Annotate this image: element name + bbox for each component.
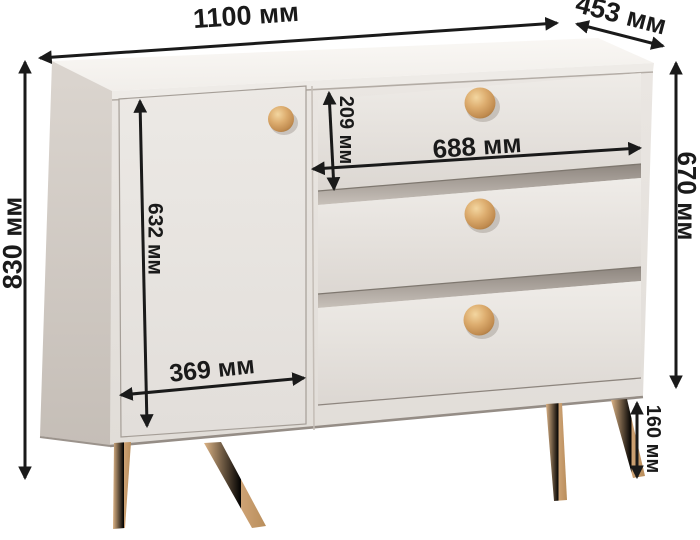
drawer-1-knob xyxy=(465,88,496,119)
back-left-leg xyxy=(204,442,266,528)
dim-label-door-height: 632 мм xyxy=(145,203,166,275)
dim-label-overall-height: 830 мм xyxy=(0,197,27,290)
dresser-illustration xyxy=(0,0,700,540)
drawer-3-knob xyxy=(464,305,495,336)
dim-label-leg-height: 160 мм xyxy=(643,405,663,474)
dim-label-body-height: 670 мм xyxy=(674,151,700,240)
furniture-dimension-diagram: 1100 мм 453 мм 830 мм 670 мм 632 мм 209 … xyxy=(0,0,700,540)
door-knob xyxy=(268,106,294,132)
front-right-leg xyxy=(546,403,567,501)
dim-label-top-drawer-height: 209 мм xyxy=(336,96,356,165)
drawer-2-knob xyxy=(465,199,496,230)
dim-label-drawer-width: 688 мм xyxy=(432,130,523,162)
front-left-leg xyxy=(113,442,131,529)
cabinet-side-panel xyxy=(40,61,112,446)
drawers xyxy=(318,73,641,405)
back-right-leg xyxy=(611,399,645,478)
